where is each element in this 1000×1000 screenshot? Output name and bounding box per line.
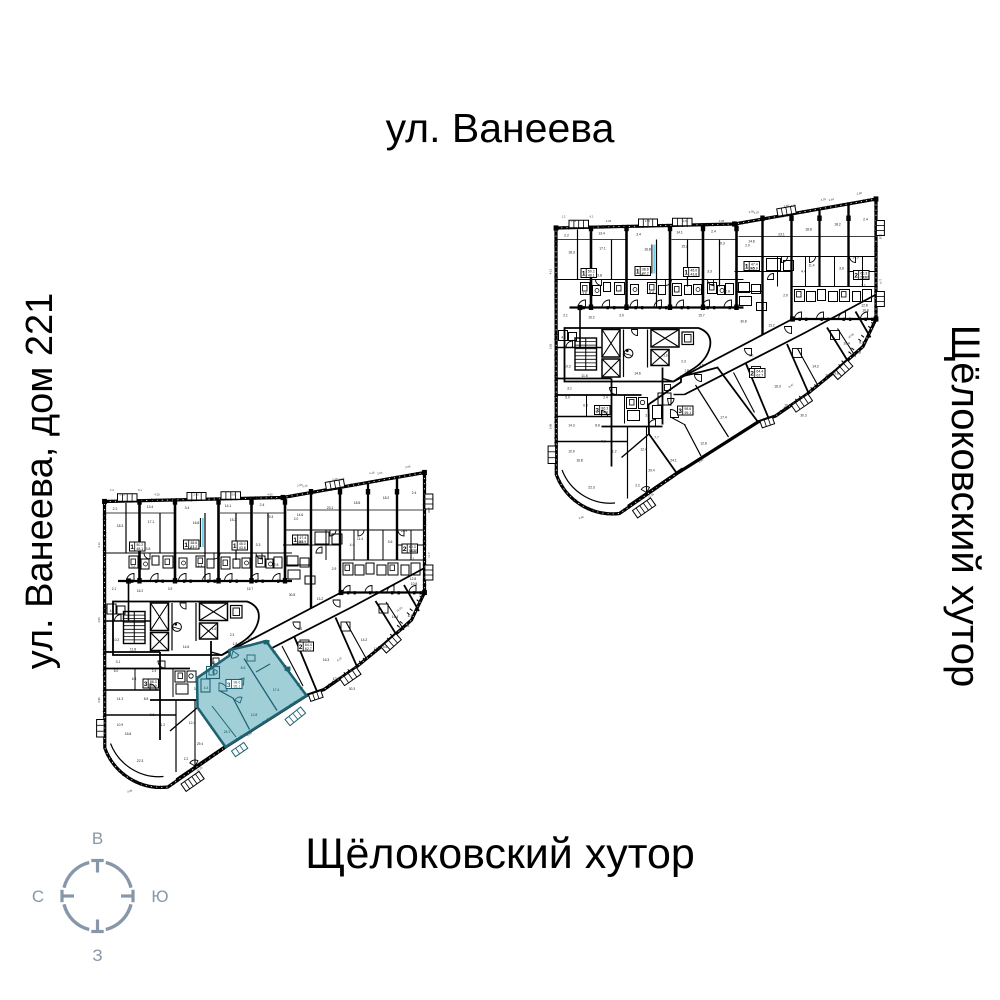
svg-text:8.6: 8.6 <box>241 666 246 670</box>
svg-text:17.4: 17.4 <box>273 688 280 692</box>
svg-text:С: С <box>32 887 44 906</box>
svg-text:Щёлоковский хутор: Щёлоковский хутор <box>305 830 695 878</box>
svg-text:4.4: 4.4 <box>204 686 209 690</box>
svg-text:Щёлоковский хутор: Щёлоковский хутор <box>943 325 987 687</box>
svg-text:95.1: 95.1 <box>233 685 240 689</box>
svg-text:В: В <box>92 829 103 848</box>
svg-text:ул. Ванеева, дом 221: ул. Ванеева, дом 221 <box>19 293 61 670</box>
svg-text:Ю: Ю <box>151 887 168 906</box>
svg-text:12.8: 12.8 <box>251 713 258 717</box>
svg-text:З: З <box>92 946 102 965</box>
svg-text:ул. Ванеева: ул. Ванеева <box>386 105 615 151</box>
svg-text:3.8: 3.8 <box>211 661 216 665</box>
svg-text:24.1: 24.1 <box>224 730 231 734</box>
svg-text:3: 3 <box>227 682 231 689</box>
